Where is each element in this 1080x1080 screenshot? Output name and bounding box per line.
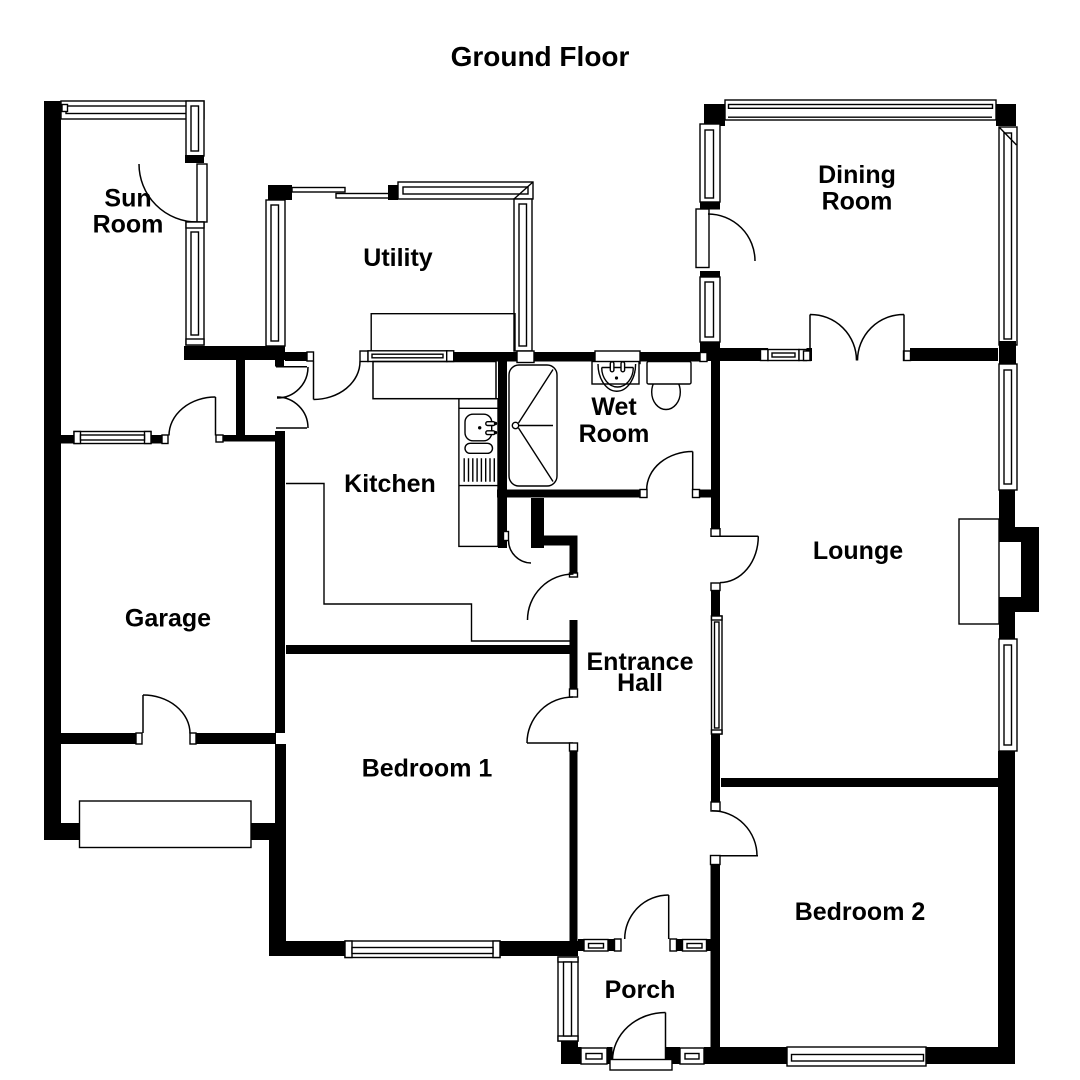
svg-text:Room: Room (579, 420, 650, 448)
svg-text:Sun: Sun (104, 185, 151, 213)
svg-text:Kitchen: Kitchen (344, 470, 436, 498)
svg-text:Room: Room (822, 188, 893, 216)
svg-text:Lounge: Lounge (813, 537, 903, 565)
svg-text:Dining: Dining (818, 161, 896, 189)
svg-text:Ground Floor: Ground Floor (451, 41, 630, 72)
svg-text:Bedroom 1: Bedroom 1 (362, 755, 493, 783)
svg-text:Bedroom 2: Bedroom 2 (795, 898, 926, 926)
svg-text:Garage: Garage (125, 605, 211, 633)
svg-text:Wet: Wet (591, 393, 637, 421)
svg-text:Porch: Porch (605, 976, 676, 1004)
svg-text:Utility: Utility (363, 244, 433, 272)
svg-text:Hall: Hall (617, 669, 663, 697)
svg-text:Room: Room (93, 211, 164, 239)
